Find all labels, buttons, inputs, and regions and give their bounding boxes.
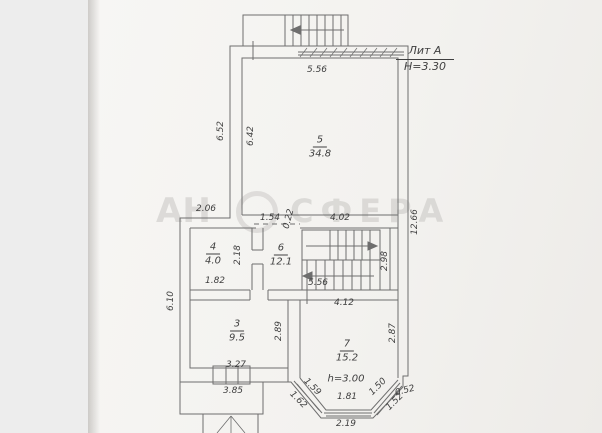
- exterior-walls: [180, 46, 408, 418]
- room-number: 5: [313, 135, 327, 148]
- dim-upper-left-inner: 6.42: [246, 126, 256, 146]
- interior-walls: [190, 215, 398, 382]
- floorplan-drawing: [0, 0, 602, 433]
- dim-bay-bottom-outer: 2.19: [336, 419, 356, 429]
- room-number: 6: [274, 243, 288, 256]
- dim-bay-bottom-inner: 1.81: [337, 392, 357, 402]
- room-area: 9.5: [229, 333, 245, 344]
- dim-room3-outer: 3.85: [223, 386, 243, 396]
- building-legend: Лит А H=3.30: [396, 45, 454, 73]
- dim-lower-left-outer: 6.10: [166, 291, 176, 311]
- dim-stair-hall-width: 4.02: [330, 213, 350, 223]
- entrance-porch: [180, 366, 263, 433]
- room-label-5: 5 34.8: [309, 135, 331, 160]
- top-window: [253, 41, 404, 60]
- dim-room7-top: 4.12: [334, 298, 354, 308]
- room-label-6: 6 12.1: [270, 243, 292, 268]
- room-label-4: 4 4.0: [205, 242, 221, 267]
- room-label-3: 3 9.5: [229, 319, 245, 344]
- room7-ceiling-height-label: h=3.00: [328, 374, 365, 385]
- dim-left-step: 2.06: [196, 204, 216, 214]
- room-number: 4: [206, 242, 220, 255]
- room-area: 4.0: [205, 256, 221, 267]
- building-height-label: H=3.30: [396, 60, 454, 74]
- dim-hall-bottom: 5.56: [308, 278, 328, 288]
- room-number: 3: [230, 319, 244, 332]
- dim-room3-width: 3.27: [226, 360, 246, 370]
- dim-room4-depth: 2.18: [233, 245, 243, 265]
- dim-room3-depth: 2.89: [274, 321, 284, 341]
- lit-label: Лит А: [396, 45, 454, 60]
- dim-room4-width: 1.82: [205, 276, 225, 286]
- room-label-7: 7 15.2: [336, 339, 358, 364]
- dim-room7-depth: 2.87: [388, 323, 398, 343]
- dim-top-window: 5.56: [307, 65, 327, 75]
- external-staircase: [243, 15, 348, 46]
- room-number: 7: [340, 339, 354, 352]
- dim-right-side: 12.66: [410, 209, 420, 235]
- room-area: 34.8: [309, 149, 331, 160]
- dim-opening-width: 1.54: [260, 213, 280, 223]
- dim-upper-left-outer: 6.52: [216, 121, 226, 141]
- dim-stair-depth: 2.98: [380, 251, 390, 271]
- scanned-floorplan-page: АН СФЕРА: [0, 0, 602, 433]
- room-area: 15.2: [336, 353, 358, 364]
- room-area: 12.1: [270, 257, 292, 268]
